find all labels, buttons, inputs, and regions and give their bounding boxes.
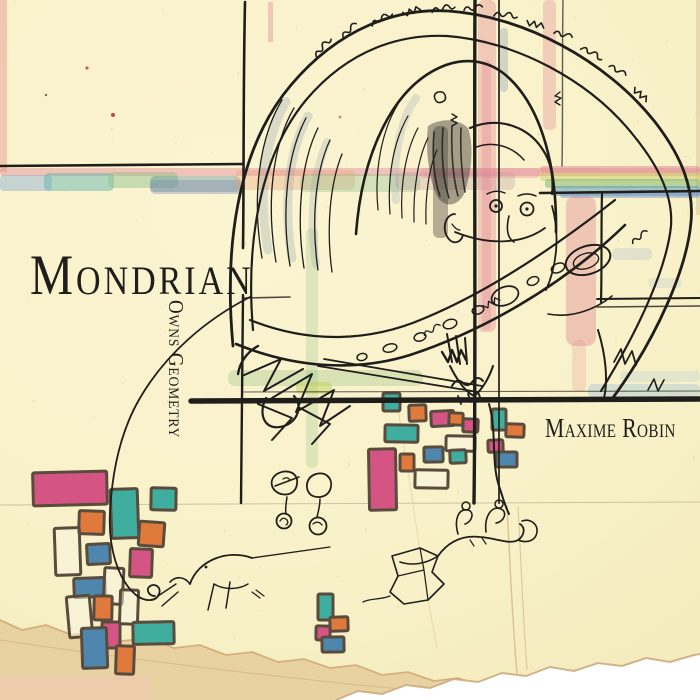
color-block: [138, 521, 165, 547]
paper-speck: [364, 247, 365, 248]
sketch-crumpled-paper: [363, 548, 444, 604]
paper-speck: [306, 357, 307, 358]
paper-speck: [175, 136, 176, 137]
paper-speck: [259, 566, 260, 567]
paper-speck: [136, 220, 138, 222]
paper-speck: [427, 572, 429, 574]
paper-speck: [362, 88, 364, 90]
sketch-maracas: [272, 471, 332, 534]
paper-speck: [31, 566, 32, 567]
paper-speck: [365, 528, 367, 530]
paper-speck: [290, 125, 291, 126]
paper-speck: [397, 605, 399, 607]
paper-speck: [112, 141, 114, 143]
paper-speck: [666, 40, 668, 42]
paper-speck: [471, 549, 473, 551]
paper-speck: [216, 192, 217, 193]
paper-speck: [617, 239, 619, 241]
album-title: Mondrian: [30, 243, 254, 308]
paper-speck: [32, 400, 35, 403]
paper-speck: [563, 31, 566, 34]
sketch-donkey: [158, 547, 330, 610]
color-block: [110, 489, 139, 539]
ink-speck: [85, 66, 88, 69]
paper-speck: [457, 490, 459, 492]
paper-speck: [425, 240, 427, 242]
paper-speck: [296, 26, 298, 28]
paper-speck: [251, 240, 253, 242]
paper-speck: [198, 135, 199, 136]
paper-speck: [408, 565, 409, 566]
paper-speck: [122, 383, 124, 385]
paper-speck: [197, 181, 198, 182]
paper-speck: [27, 524, 29, 526]
grid-vertical-left: [243, 2, 245, 248]
brim-outer-edge: [230, 11, 691, 399]
paper-speck: [615, 337, 617, 339]
paper-speck: [348, 463, 351, 466]
paper-speck: [689, 157, 691, 159]
color-block: [322, 637, 344, 652]
paper-speck: [238, 576, 240, 578]
paper-speck: [512, 288, 514, 290]
paper-speck: [5, 31, 6, 32]
paper-speck: [287, 201, 289, 203]
mondrian-blocks: [33, 393, 525, 674]
grid-horizontal-top: [0, 164, 243, 166]
artwork-canvas: [0, 0, 700, 700]
paper-speck: [71, 509, 72, 510]
color-block: [450, 450, 466, 464]
paper-speck: [320, 439, 321, 440]
paper-speck: [693, 456, 695, 458]
paper-speck: [28, 301, 29, 302]
paper-speck: [234, 638, 235, 639]
color-block: [116, 646, 135, 675]
paper-speck: [657, 184, 659, 186]
color-block: [151, 488, 176, 510]
color-block: [385, 425, 418, 443]
color-block: [79, 511, 105, 535]
album-subtitle: Owns Geometry: [163, 300, 188, 438]
paper-speck: [162, 9, 164, 11]
hat-brim: [230, 4, 691, 399]
paper-speck: [324, 206, 326, 208]
paper-speck: [237, 72, 239, 74]
paper-speck: [205, 604, 206, 605]
paper-speck: [66, 190, 67, 191]
paper-speck: [337, 576, 339, 578]
color-block: [400, 454, 414, 471]
paper-speck: [167, 564, 168, 565]
paper-speck: [575, 352, 576, 353]
paper-speck: [13, 1, 15, 3]
paper-speck: [639, 56, 640, 57]
paper-speck: [657, 558, 658, 559]
ink-speck: [45, 94, 47, 96]
paper-speck: [480, 191, 482, 193]
grid-horizontal-thick: [191, 399, 700, 401]
color-block: [415, 470, 448, 489]
paper-speck: [224, 530, 226, 532]
paper-speck: [574, 17, 576, 19]
paper-speck: [156, 176, 158, 178]
paper-speck: [545, 207, 546, 208]
ink-speck: [111, 113, 115, 117]
paper-speck: [537, 133, 540, 136]
crease-line: [507, 506, 517, 674]
paper-speck: [695, 112, 697, 114]
color-block: [86, 543, 110, 564]
paper-speck: [258, 610, 259, 611]
ink-speck: [339, 116, 342, 119]
color-block: [409, 405, 427, 422]
paper-speck: [539, 116, 540, 117]
paper-speck: [605, 228, 607, 230]
paper-speck: [285, 385, 287, 387]
paper-speck: [357, 129, 359, 131]
paper-speck: [665, 25, 666, 26]
color-block: [368, 449, 396, 510]
paper-speck: [687, 211, 689, 213]
paper-speck: [696, 369, 698, 371]
color-block: [130, 549, 153, 578]
paper-speck: [457, 311, 459, 313]
paper-speck: [211, 152, 212, 153]
paper-speck: [183, 136, 185, 138]
color-block: [449, 413, 463, 425]
album-cover-art: Mondrian Owns Geometry Maxime Robin: [0, 0, 700, 700]
paper-speck: [159, 328, 161, 330]
paper-speck: [512, 293, 513, 294]
color-block: [488, 440, 503, 453]
color-block: [81, 628, 107, 669]
paper-speck: [19, 459, 21, 461]
artist-name: Maxime Robin: [545, 413, 676, 444]
color-block: [94, 596, 112, 620]
paper-speck: [637, 120, 639, 122]
paper-speck: [459, 347, 461, 349]
color-block: [33, 471, 108, 506]
paper-speck: [650, 100, 652, 102]
color-block: [330, 617, 348, 632]
paper-speck: [111, 128, 114, 131]
paper-speck: [684, 155, 686, 157]
color-block: [424, 447, 443, 462]
paper-speck: [346, 163, 347, 164]
paper-speck: [263, 167, 265, 169]
paper-speck: [93, 418, 95, 420]
paper-speck: [620, 185, 621, 186]
color-block: [133, 622, 174, 645]
color-block: [54, 528, 81, 576]
paper-speck: [478, 278, 480, 280]
grid-vertical-center: [474, 0, 475, 503]
color-block: [506, 424, 524, 438]
nose-line: [507, 216, 514, 242]
